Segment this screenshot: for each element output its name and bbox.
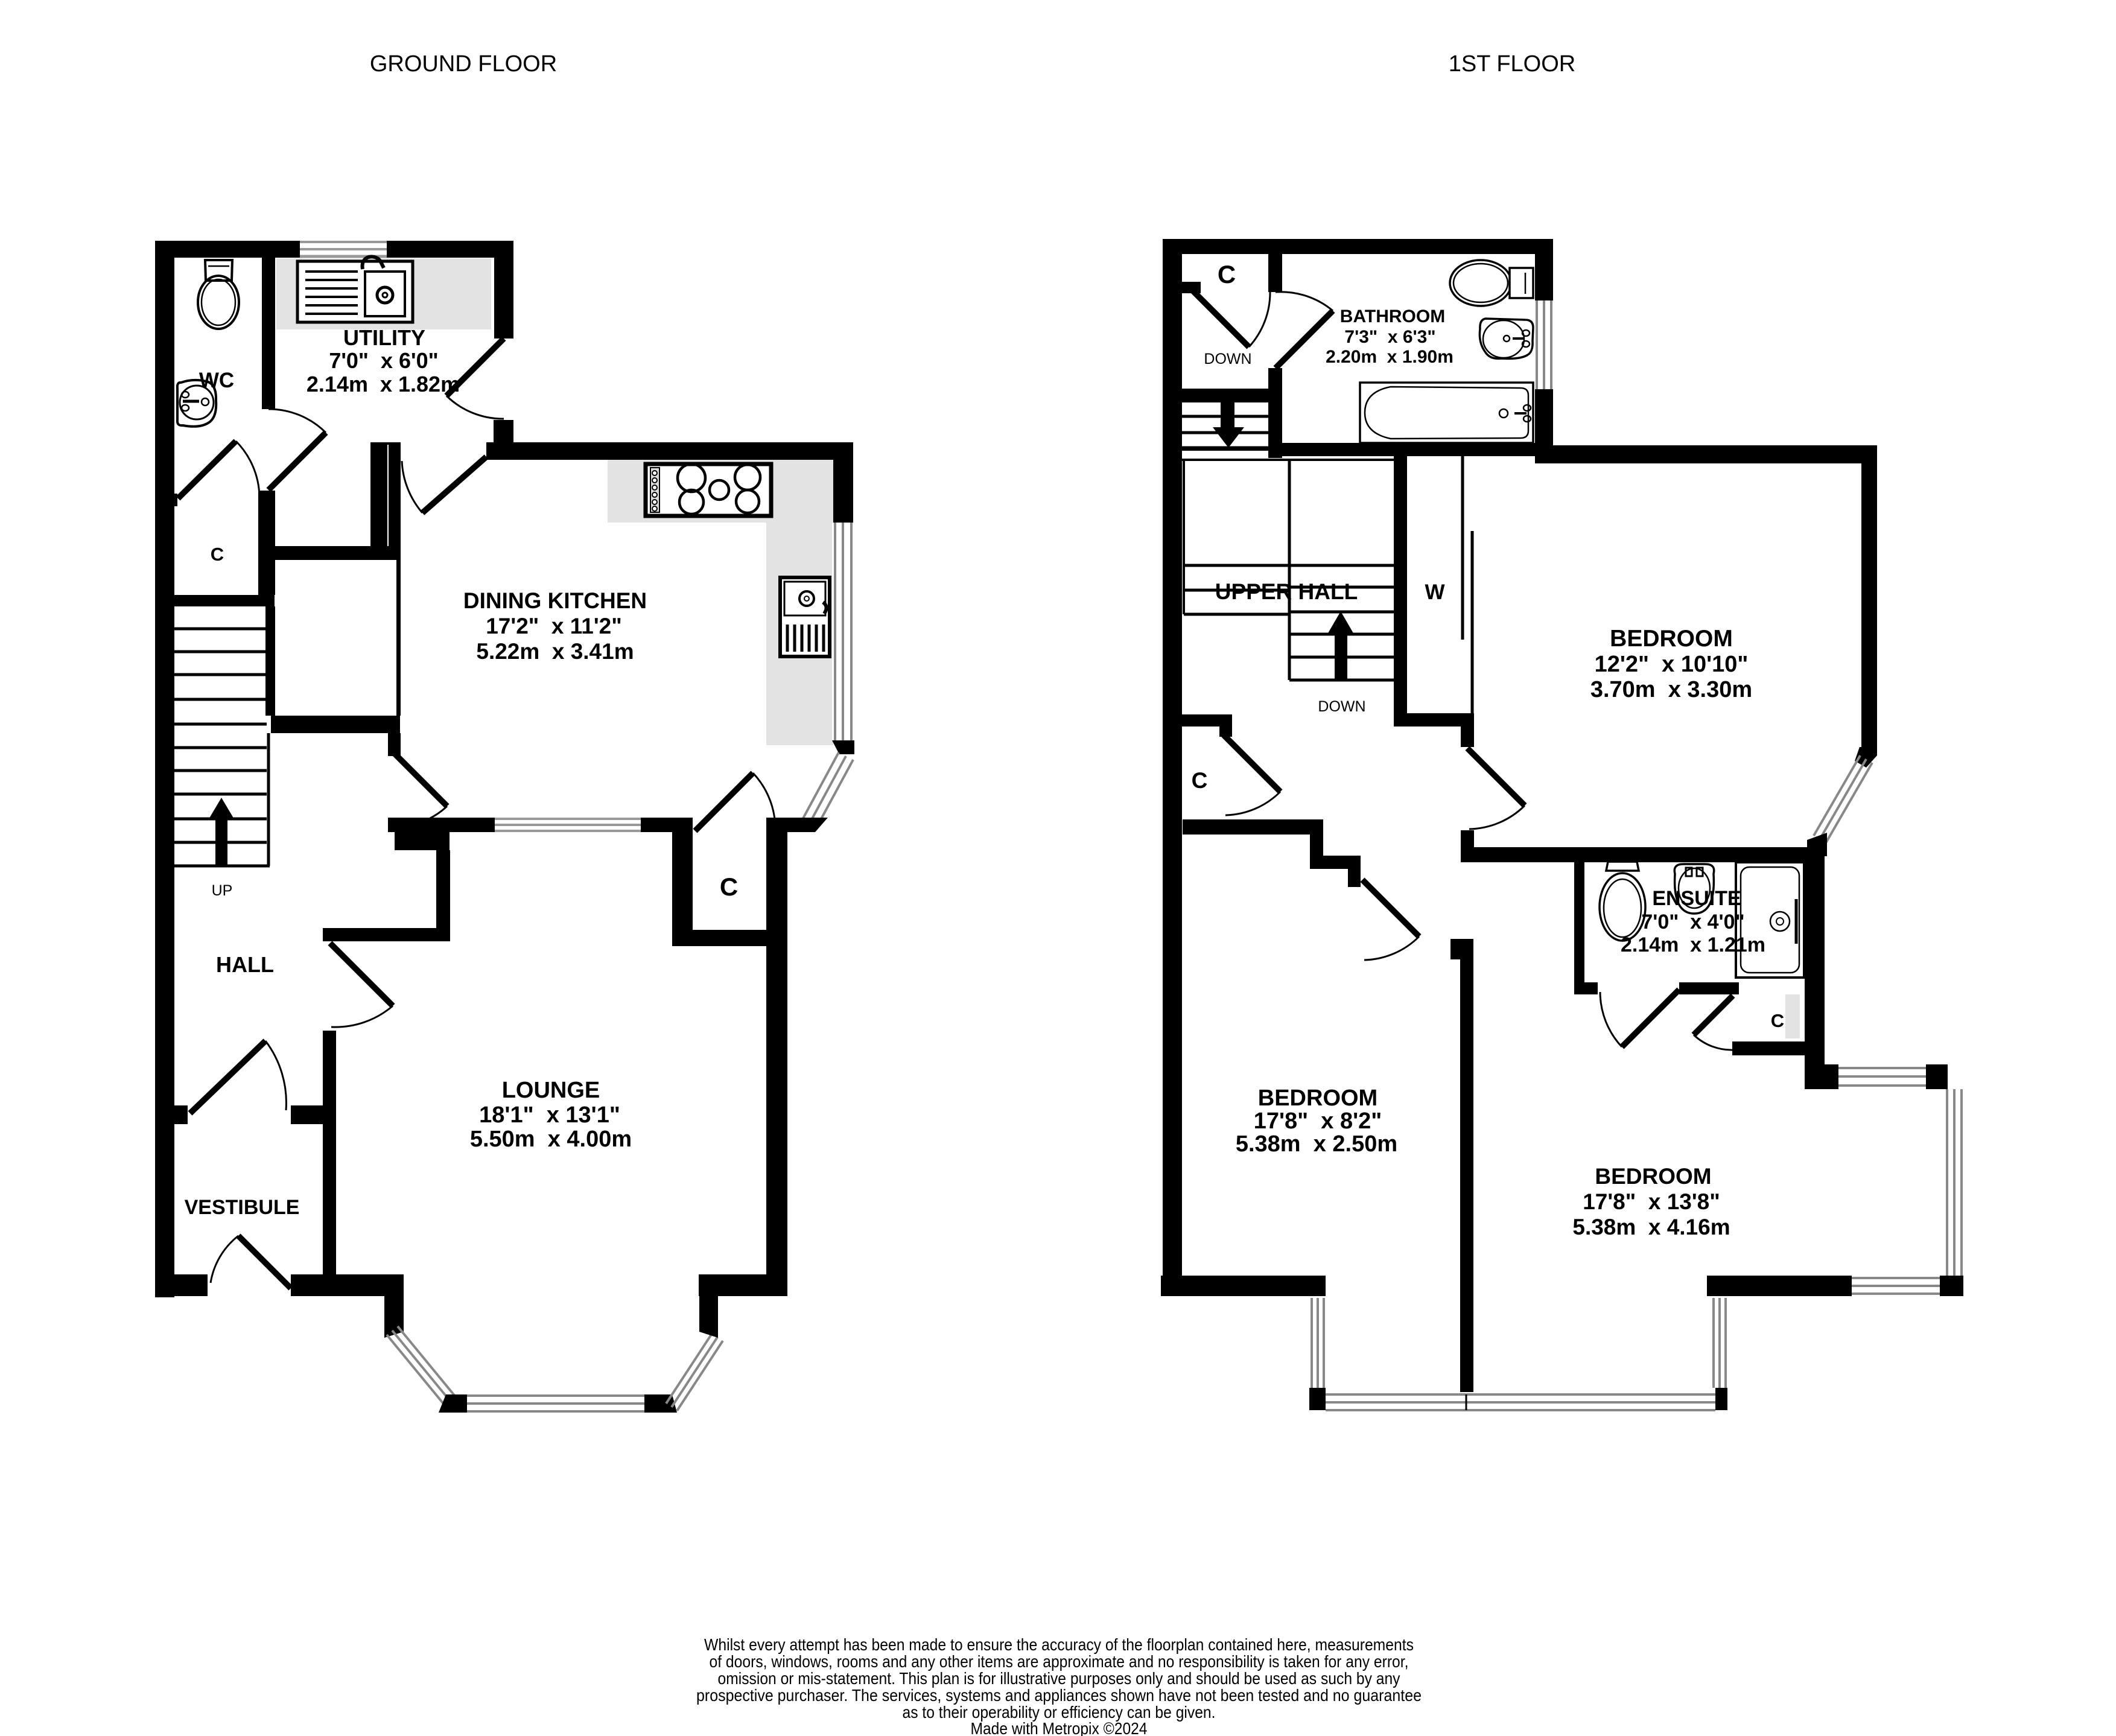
svg-text:C: C [1192, 768, 1208, 793]
svg-text:2.14m x 1.82m: 2.14m x 1.82m [307, 372, 460, 396]
svg-text:BEDROOM: BEDROOM [1595, 1164, 1711, 1189]
svg-text:C: C [1771, 1010, 1784, 1031]
svg-text:3.70m x 3.30m: 3.70m x 3.30m [1590, 677, 1752, 702]
svg-text:HALL: HALL [216, 952, 274, 977]
svg-text:18'1" x 13'1": 18'1" x 13'1" [479, 1102, 620, 1128]
svg-text:DINING KITCHEN: DINING KITCHEN [463, 588, 647, 613]
svg-text:1ST FLOOR: 1ST FLOOR [1449, 51, 1575, 77]
svg-text:7'0" x 4'0": 7'0" x 4'0" [1641, 911, 1744, 933]
svg-text:5.38m x 4.16m: 5.38m x 4.16m [1572, 1215, 1730, 1239]
svg-text:Made with Metropix ©2024: Made with Metropix ©2024 [971, 1719, 1148, 1736]
svg-text:ENSUITE: ENSUITE [1652, 887, 1741, 910]
svg-text:DOWN: DOWN [1318, 698, 1365, 715]
svg-text:WC: WC [199, 369, 234, 392]
svg-text:17'8" x 13'8": 17'8" x 13'8" [1583, 1189, 1720, 1214]
svg-text:2.20m x 1.90m: 2.20m x 1.90m [1326, 347, 1454, 367]
svg-text:UPPER HALL: UPPER HALL [1215, 579, 1358, 604]
svg-text:C: C [211, 544, 224, 565]
svg-text:C: C [1218, 260, 1236, 288]
svg-text:C: C [720, 873, 738, 901]
svg-text:DOWN: DOWN [1204, 351, 1251, 367]
svg-text:omission or mis-statement. Thi: omission or mis-statement. This plan is … [718, 1669, 1400, 1688]
svg-text:7'0" x 6'0": 7'0" x 6'0" [329, 348, 438, 373]
svg-text:5.22m x 3.41m: 5.22m x 3.41m [476, 639, 634, 664]
svg-text:17'8" x 8'2": 17'8" x 8'2" [1254, 1108, 1382, 1134]
svg-text:BEDROOM: BEDROOM [1258, 1086, 1377, 1111]
svg-text:5.38m x 2.50m: 5.38m x 2.50m [1236, 1131, 1397, 1157]
svg-text:2.14m x 1.21m: 2.14m x 1.21m [1621, 933, 1765, 956]
svg-text:BEDROOM: BEDROOM [1610, 626, 1733, 652]
svg-text:5.50m x 4.00m: 5.50m x 4.00m [470, 1127, 632, 1152]
svg-text:7'3" x 6'3": 7'3" x 6'3" [1344, 327, 1435, 347]
svg-text:UTILITY: UTILITY [343, 325, 425, 350]
svg-text:LOUNGE: LOUNGE [502, 1078, 600, 1103]
svg-text:Whilst every attempt has been: Whilst every attempt has been made to en… [704, 1635, 1414, 1654]
svg-text:17'2" x 11'2": 17'2" x 11'2" [486, 614, 622, 638]
svg-text:UP: UP [212, 882, 233, 899]
svg-text:VESTIBULE: VESTIBULE [185, 1196, 300, 1219]
svg-text:BATHROOM: BATHROOM [1340, 307, 1445, 326]
svg-text:prospective purchaser. The ser: prospective purchaser. The services, sys… [696, 1686, 1422, 1705]
svg-text:GROUND FLOOR: GROUND FLOOR [370, 51, 557, 77]
svg-text:of doors, windows, rooms and a: of doors, windows, rooms and any other i… [710, 1652, 1409, 1671]
svg-text:W: W [1425, 580, 1444, 604]
svg-text:12'2" x 10'10": 12'2" x 10'10" [1595, 652, 1749, 677]
